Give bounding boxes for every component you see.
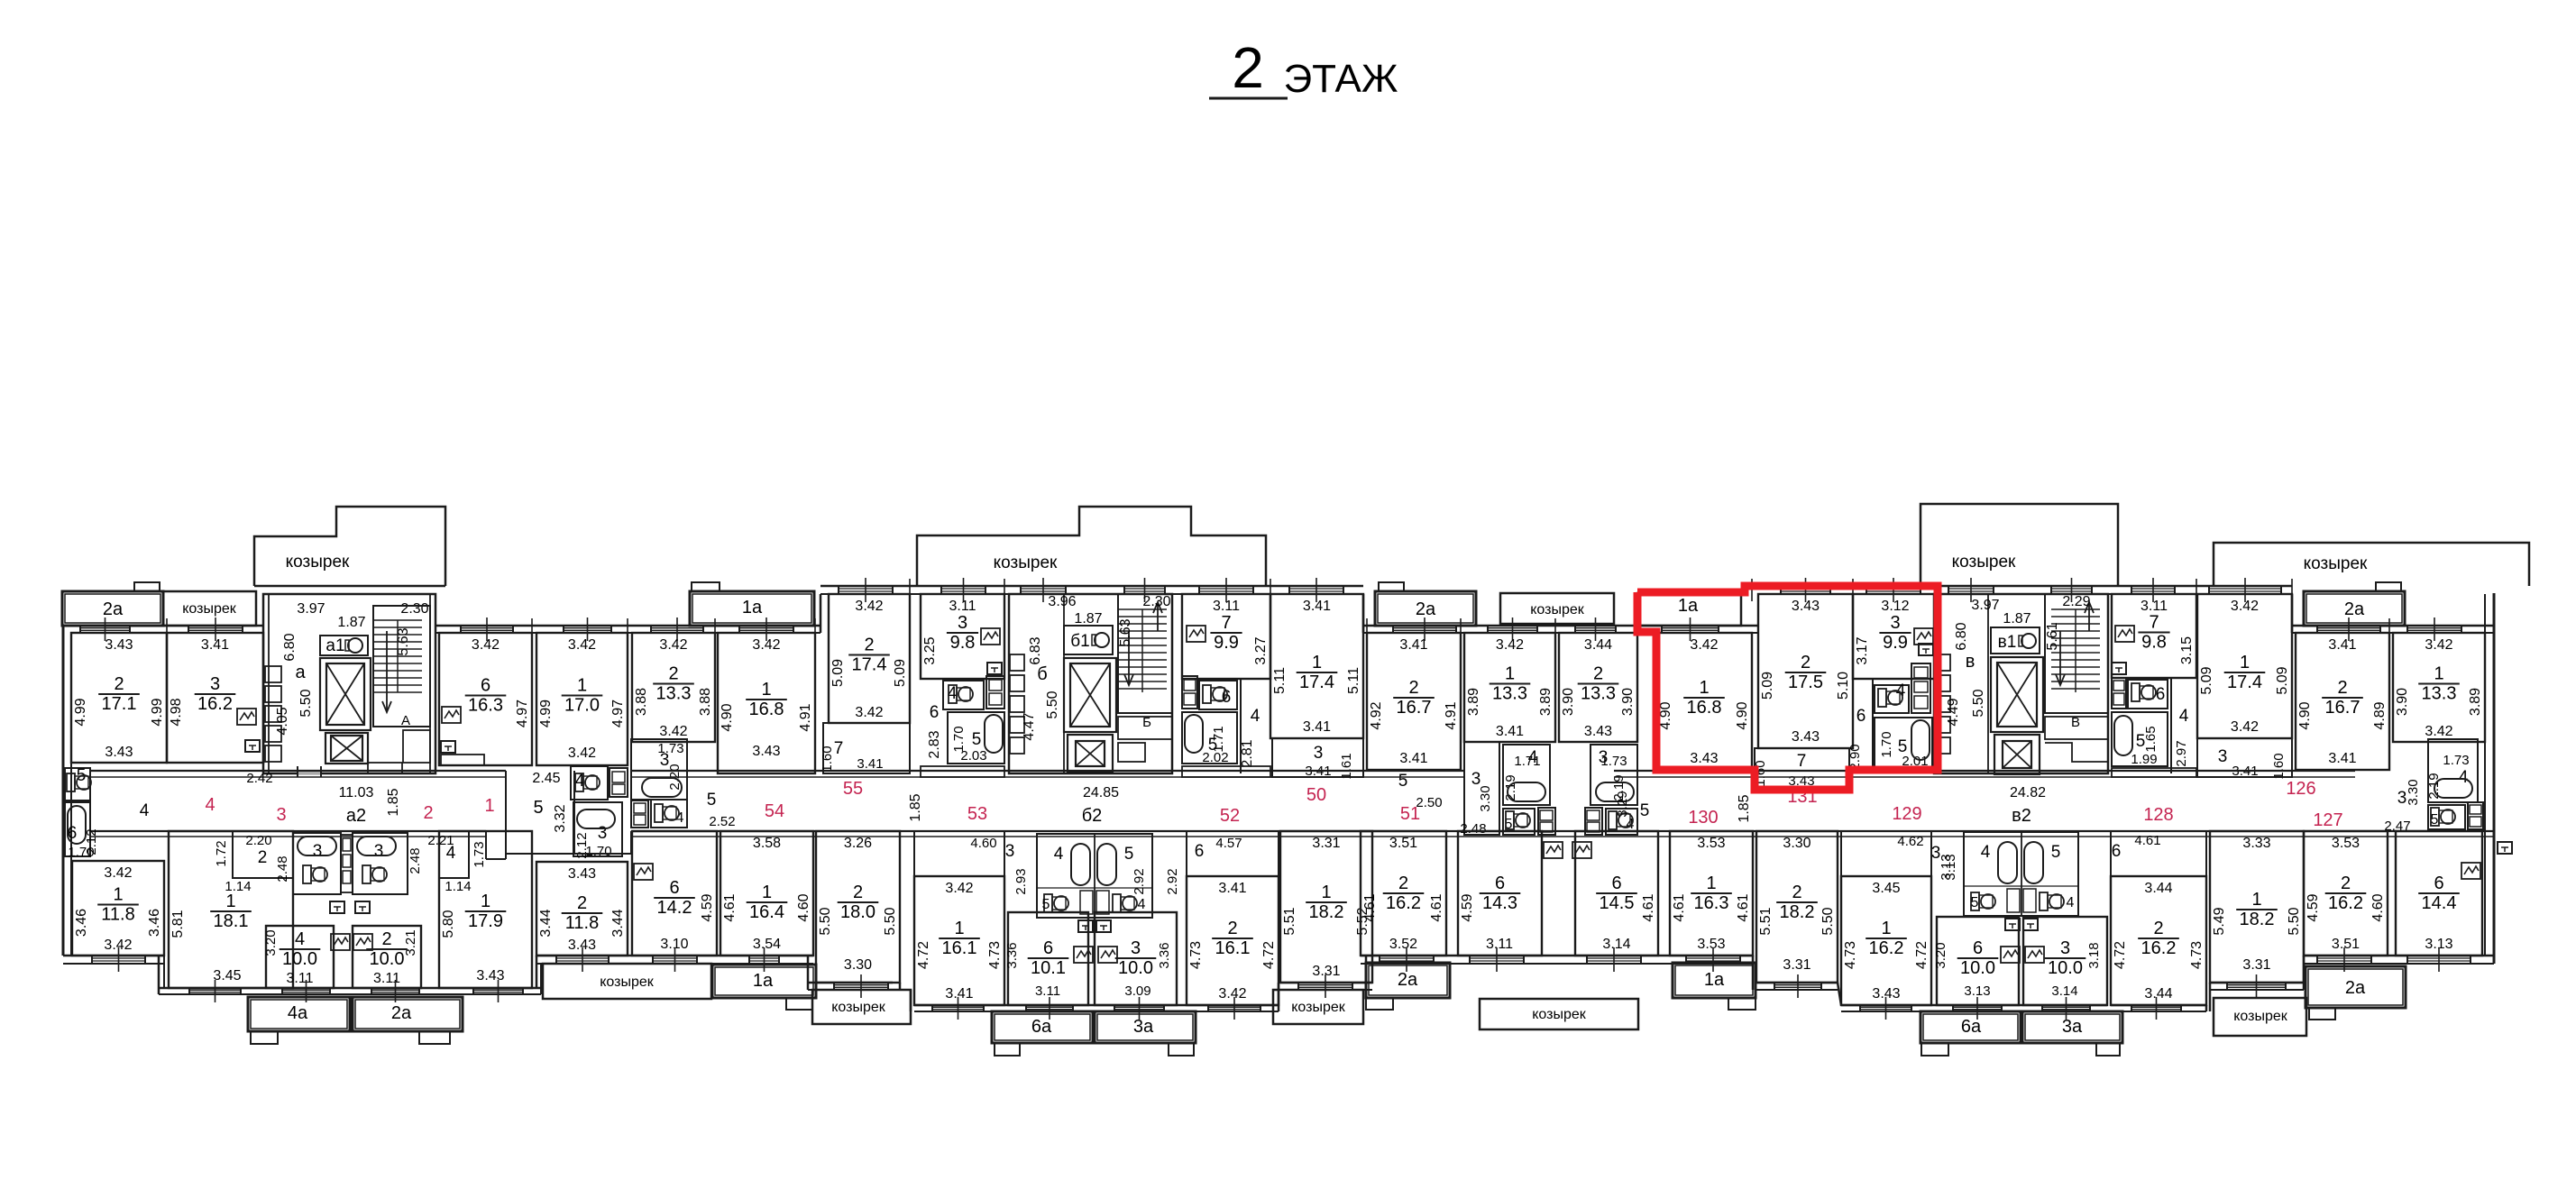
svg-text:3.13: 3.13 xyxy=(1964,983,1990,999)
svg-text:3.41: 3.41 xyxy=(1399,637,1427,653)
svg-text:2а: 2а xyxy=(2345,978,2366,998)
svg-text:5.61: 5.61 xyxy=(2045,622,2060,650)
svg-text:3.11: 3.11 xyxy=(1486,937,1513,952)
svg-text:3.42: 3.42 xyxy=(2231,719,2259,735)
svg-text:3.97: 3.97 xyxy=(1971,598,1999,613)
svg-text:16.1: 16.1 xyxy=(1215,938,1251,958)
svg-text:3: 3 xyxy=(1890,613,1900,633)
svg-text:16.1: 16.1 xyxy=(942,938,977,958)
svg-text:3.25: 3.25 xyxy=(922,636,938,664)
svg-text:4.72: 4.72 xyxy=(2113,941,2128,969)
svg-text:2.45: 2.45 xyxy=(532,771,560,786)
svg-text:4.90: 4.90 xyxy=(720,703,735,731)
svg-text:55: 55 xyxy=(843,779,863,799)
svg-text:4.73: 4.73 xyxy=(1843,941,1858,969)
svg-text:2.30: 2.30 xyxy=(400,601,428,617)
svg-text:24.85: 24.85 xyxy=(1083,785,1119,800)
svg-text:17.1: 17.1 xyxy=(102,694,137,714)
svg-text:3: 3 xyxy=(1599,748,1609,767)
svg-text:11.03: 11.03 xyxy=(339,785,374,800)
svg-text:3.42: 3.42 xyxy=(659,637,687,653)
svg-text:5.49: 5.49 xyxy=(2212,907,2227,935)
svg-text:3.36: 3.36 xyxy=(1004,942,1020,968)
svg-text:6.80: 6.80 xyxy=(282,633,298,661)
svg-text:4.59: 4.59 xyxy=(2306,893,2321,921)
svg-text:50: 50 xyxy=(1306,785,1326,805)
svg-text:17.4: 17.4 xyxy=(2227,672,2262,692)
svg-text:4.73: 4.73 xyxy=(987,941,1003,969)
svg-text:2.83: 2.83 xyxy=(927,730,942,758)
svg-text:4.91: 4.91 xyxy=(798,703,813,731)
svg-text:1: 1 xyxy=(484,796,494,816)
svg-text:3: 3 xyxy=(1005,842,1015,861)
svg-text:2: 2 xyxy=(258,848,268,867)
svg-text:3.46: 3.46 xyxy=(147,909,162,937)
svg-text:13.3: 13.3 xyxy=(656,684,692,704)
svg-text:1: 1 xyxy=(481,892,490,911)
svg-text:10.0: 10.0 xyxy=(1118,958,1153,978)
svg-text:4: 4 xyxy=(1528,748,1538,767)
svg-text:130: 130 xyxy=(1688,808,1718,828)
svg-text:1.73: 1.73 xyxy=(472,841,487,867)
svg-text:3.30: 3.30 xyxy=(1478,785,1493,811)
svg-text:2.92: 2.92 xyxy=(1132,868,1147,894)
svg-text:17.9: 17.9 xyxy=(468,911,503,931)
svg-text:2а: 2а xyxy=(391,1003,412,1023)
svg-text:2.02: 2.02 xyxy=(1202,750,1228,765)
svg-text:5: 5 xyxy=(2051,843,2061,862)
svg-text:1: 1 xyxy=(1881,919,1891,938)
svg-text:4.61: 4.61 xyxy=(1429,893,1444,921)
svg-text:5: 5 xyxy=(533,798,543,818)
svg-text:3.53: 3.53 xyxy=(2332,836,2360,851)
svg-text:2.97: 2.97 xyxy=(2174,740,2189,766)
svg-text:3.41: 3.41 xyxy=(945,986,973,1002)
svg-text:козырек: козырек xyxy=(1532,1007,1587,1022)
svg-text:16.8: 16.8 xyxy=(749,700,784,719)
svg-text:3.14: 3.14 xyxy=(2051,983,2077,999)
svg-text:3: 3 xyxy=(958,613,967,633)
svg-text:127: 127 xyxy=(2313,810,2342,830)
svg-text:1: 1 xyxy=(2251,890,2261,910)
svg-text:10.1: 10.1 xyxy=(1031,958,1066,978)
svg-text:3.15: 3.15 xyxy=(2179,636,2195,664)
svg-text:3.31: 3.31 xyxy=(1783,957,1811,973)
svg-text:1.60: 1.60 xyxy=(820,746,835,772)
svg-text:1.70: 1.70 xyxy=(585,844,611,859)
svg-text:7: 7 xyxy=(2149,613,2159,633)
svg-text:2: 2 xyxy=(2153,919,2163,938)
svg-text:3.21: 3.21 xyxy=(403,929,418,956)
svg-text:3.27: 3.27 xyxy=(1253,636,1269,664)
svg-text:3.43: 3.43 xyxy=(105,745,133,760)
svg-text:17.4: 17.4 xyxy=(852,655,887,675)
svg-text:3.42: 3.42 xyxy=(2425,637,2452,653)
svg-text:3: 3 xyxy=(313,842,323,861)
svg-text:4.97: 4.97 xyxy=(610,700,626,727)
svg-text:5: 5 xyxy=(1398,772,1408,791)
svg-text:5.09: 5.09 xyxy=(2275,666,2290,694)
svg-text:14.3: 14.3 xyxy=(1482,893,1517,913)
svg-text:4.73: 4.73 xyxy=(2189,941,2205,969)
svg-text:5: 5 xyxy=(1042,897,1050,912)
svg-text:4.99: 4.99 xyxy=(73,698,88,726)
svg-text:16.3: 16.3 xyxy=(1694,893,1729,913)
svg-text:3.41: 3.41 xyxy=(2328,751,2356,766)
svg-text:11.8: 11.8 xyxy=(565,913,599,933)
svg-text:3.30: 3.30 xyxy=(2406,779,2421,805)
svg-text:13.3: 13.3 xyxy=(1581,684,1616,704)
svg-text:3.41: 3.41 xyxy=(1399,751,1427,766)
svg-text:10.0: 10.0 xyxy=(1960,958,1995,978)
svg-text:7: 7 xyxy=(1797,752,1807,771)
svg-text:4: 4 xyxy=(1138,897,1146,912)
svg-text:а: а xyxy=(295,663,306,682)
svg-text:2: 2 xyxy=(2337,678,2347,698)
svg-text:129: 129 xyxy=(1892,804,1921,824)
svg-text:3.45: 3.45 xyxy=(213,968,241,983)
svg-text:4.61: 4.61 xyxy=(1672,893,1687,921)
svg-text:3.90: 3.90 xyxy=(1620,688,1636,716)
svg-text:1.85: 1.85 xyxy=(386,788,401,816)
svg-text:3.11: 3.11 xyxy=(373,971,400,986)
svg-text:11.8: 11.8 xyxy=(101,905,134,925)
svg-text:2.81: 2.81 xyxy=(1240,739,1255,767)
svg-text:3.42: 3.42 xyxy=(2231,599,2259,614)
svg-text:5.09: 5.09 xyxy=(2199,666,2214,694)
svg-text:4.90: 4.90 xyxy=(2297,701,2313,729)
svg-text:3.53: 3.53 xyxy=(1697,937,1725,952)
svg-text:6: 6 xyxy=(1195,842,1205,861)
svg-text:16.2: 16.2 xyxy=(2328,893,2363,913)
svg-text:2: 2 xyxy=(1227,919,1237,938)
svg-text:5: 5 xyxy=(1640,801,1650,820)
svg-text:1: 1 xyxy=(2434,664,2443,684)
svg-text:2: 2 xyxy=(1408,678,1418,698)
svg-text:козырек: козырек xyxy=(286,553,350,572)
svg-text:5.63: 5.63 xyxy=(1118,618,1133,646)
svg-text:3.11: 3.11 xyxy=(949,599,976,614)
svg-text:16.3: 16.3 xyxy=(468,696,503,716)
svg-text:3.42: 3.42 xyxy=(2425,724,2452,739)
svg-text:козырек: козырек xyxy=(2304,554,2368,573)
svg-text:3.44: 3.44 xyxy=(1584,637,1612,653)
svg-text:3.46: 3.46 xyxy=(74,909,89,937)
svg-text:3.41: 3.41 xyxy=(201,637,229,653)
svg-text:4: 4 xyxy=(1054,845,1064,864)
svg-text:6: 6 xyxy=(930,703,940,722)
svg-text:3.41: 3.41 xyxy=(1496,724,1524,739)
svg-text:6: 6 xyxy=(1611,874,1621,893)
svg-text:3.11: 3.11 xyxy=(1213,599,1240,614)
svg-text:3.33: 3.33 xyxy=(2242,836,2270,851)
svg-text:2: 2 xyxy=(668,664,678,684)
svg-text:1: 1 xyxy=(225,892,235,911)
svg-text:5.09: 5.09 xyxy=(830,659,846,687)
svg-text:4: 4 xyxy=(205,795,215,815)
svg-text:10.0: 10.0 xyxy=(2048,958,2083,978)
svg-text:4.47: 4.47 xyxy=(1022,712,1037,740)
svg-text:3.52: 3.52 xyxy=(1389,937,1417,952)
svg-text:6.83: 6.83 xyxy=(1028,636,1043,664)
svg-text:14.4: 14.4 xyxy=(2422,893,2457,913)
svg-text:1а: 1а xyxy=(742,598,763,617)
svg-text:3.43: 3.43 xyxy=(752,744,780,759)
svg-text:3.26: 3.26 xyxy=(844,836,872,851)
svg-text:3.43: 3.43 xyxy=(1792,599,1820,614)
svg-text:14.5: 14.5 xyxy=(1600,893,1635,913)
svg-text:1а: 1а xyxy=(1678,596,1699,616)
svg-text:13.3: 13.3 xyxy=(1492,684,1527,704)
svg-text:1: 1 xyxy=(1699,678,1709,698)
svg-text:4.61: 4.61 xyxy=(2134,833,2160,848)
svg-text:3.89: 3.89 xyxy=(1538,688,1554,716)
svg-text:3.12: 3.12 xyxy=(1881,599,1909,614)
svg-text:18.2: 18.2 xyxy=(1309,902,1344,922)
svg-text:3.29: 3.29 xyxy=(1615,791,1630,817)
svg-text:4.98: 4.98 xyxy=(169,698,184,726)
svg-text:7: 7 xyxy=(1221,613,1231,633)
svg-text:3: 3 xyxy=(1314,744,1324,763)
svg-text:1.61: 1.61 xyxy=(1339,753,1354,779)
svg-text:3.51: 3.51 xyxy=(2332,937,2360,952)
svg-text:1.65: 1.65 xyxy=(2143,726,2159,752)
svg-text:2.29: 2.29 xyxy=(2062,594,2090,609)
svg-text:3.42: 3.42 xyxy=(1690,637,1718,653)
svg-text:козырек: козырек xyxy=(2233,1009,2288,1024)
svg-text:3.43: 3.43 xyxy=(476,968,504,983)
svg-text:3: 3 xyxy=(2060,938,2070,958)
svg-text:5.50: 5.50 xyxy=(883,907,898,935)
svg-text:24.82: 24.82 xyxy=(2010,785,2046,800)
svg-text:5.50: 5.50 xyxy=(1971,689,1986,717)
svg-text:3.11: 3.11 xyxy=(287,971,314,986)
svg-text:4.61: 4.61 xyxy=(722,893,738,921)
svg-text:52: 52 xyxy=(1220,806,1240,826)
svg-text:4.60: 4.60 xyxy=(970,836,996,851)
svg-text:5: 5 xyxy=(1124,845,1134,864)
svg-text:3.41: 3.41 xyxy=(1303,599,1331,614)
svg-text:козырек: козырек xyxy=(1291,1000,1346,1015)
svg-text:9.8: 9.8 xyxy=(2141,633,2167,653)
svg-text:18.0: 18.0 xyxy=(840,902,875,922)
svg-text:в1: в1 xyxy=(1998,633,2017,652)
svg-text:4: 4 xyxy=(2067,895,2075,910)
svg-text:18.1: 18.1 xyxy=(214,911,249,931)
svg-text:4.59: 4.59 xyxy=(700,893,715,921)
svg-text:1: 1 xyxy=(762,883,772,902)
svg-text:3.90: 3.90 xyxy=(1561,688,1576,716)
svg-text:9.9: 9.9 xyxy=(1214,633,1239,653)
svg-text:2.19: 2.19 xyxy=(1503,774,1518,800)
svg-text:18.2: 18.2 xyxy=(1780,902,1815,922)
svg-text:в: в xyxy=(1966,652,1976,672)
svg-text:126: 126 xyxy=(2286,779,2315,799)
svg-text:1: 1 xyxy=(2240,653,2250,672)
svg-text:10.0: 10.0 xyxy=(282,949,317,969)
svg-text:1а: 1а xyxy=(1704,970,1725,990)
svg-text:5.50: 5.50 xyxy=(298,689,314,717)
svg-text:4.99: 4.99 xyxy=(538,700,554,727)
svg-text:18.2: 18.2 xyxy=(2240,910,2275,929)
svg-text:4.57: 4.57 xyxy=(1215,836,1242,851)
svg-text:3.42: 3.42 xyxy=(472,637,500,653)
svg-text:3.43: 3.43 xyxy=(105,637,133,653)
svg-text:3.41: 3.41 xyxy=(2328,637,2356,653)
svg-text:3: 3 xyxy=(210,674,220,694)
svg-text:4.89: 4.89 xyxy=(2372,701,2388,729)
svg-text:козырек: козырек xyxy=(600,974,655,990)
svg-text:4.72: 4.72 xyxy=(1914,941,1930,969)
svg-text:1.73: 1.73 xyxy=(2443,753,2469,768)
svg-text:3.20: 3.20 xyxy=(263,929,279,956)
svg-text:3.31: 3.31 xyxy=(1312,964,1340,979)
svg-text:1.85: 1.85 xyxy=(908,793,923,821)
svg-text:1.87: 1.87 xyxy=(2003,611,2031,627)
svg-text:1.14: 1.14 xyxy=(225,879,251,894)
svg-text:3.43: 3.43 xyxy=(1792,729,1820,745)
svg-text:2.03: 2.03 xyxy=(960,748,986,764)
svg-text:а1: а1 xyxy=(325,636,344,655)
svg-text:6: 6 xyxy=(1856,707,1866,726)
svg-text:3.43: 3.43 xyxy=(568,866,596,882)
svg-text:16.4: 16.4 xyxy=(749,902,784,922)
svg-text:4.91: 4.91 xyxy=(1444,701,1459,729)
svg-text:5.50: 5.50 xyxy=(1045,691,1060,718)
svg-text:4: 4 xyxy=(140,801,150,820)
svg-text:6: 6 xyxy=(1973,938,1983,958)
svg-text:6.80: 6.80 xyxy=(1954,622,1969,650)
svg-text:2.48: 2.48 xyxy=(408,847,423,874)
svg-text:1: 1 xyxy=(954,919,964,938)
svg-text:б2: б2 xyxy=(1082,806,1103,826)
svg-text:16.2: 16.2 xyxy=(197,694,233,714)
svg-text:3.45: 3.45 xyxy=(1872,881,1900,896)
svg-text:а2: а2 xyxy=(346,806,366,826)
svg-text:4.97: 4.97 xyxy=(515,700,530,727)
svg-text:1.85: 1.85 xyxy=(1737,794,1752,822)
svg-text:3.53: 3.53 xyxy=(1697,836,1725,851)
svg-text:3.44: 3.44 xyxy=(2144,881,2172,896)
svg-text:2: 2 xyxy=(1792,883,1801,902)
svg-text:3.44: 3.44 xyxy=(610,909,626,937)
svg-text:2.42: 2.42 xyxy=(246,771,272,786)
svg-text:в2: в2 xyxy=(2012,806,2031,826)
svg-text:53: 53 xyxy=(967,804,987,824)
svg-text:3.11: 3.11 xyxy=(2141,599,2168,614)
svg-text:3: 3 xyxy=(276,805,286,825)
svg-text:3: 3 xyxy=(2218,747,2228,766)
svg-text:3.14: 3.14 xyxy=(1602,937,1630,952)
svg-text:3: 3 xyxy=(374,842,384,861)
svg-text:16.2: 16.2 xyxy=(2141,938,2177,958)
svg-text:3.30: 3.30 xyxy=(1783,836,1811,851)
svg-text:5: 5 xyxy=(972,730,982,749)
svg-text:3.43: 3.43 xyxy=(1690,751,1718,766)
svg-text:1.87: 1.87 xyxy=(337,615,365,630)
svg-text:128: 128 xyxy=(2143,805,2173,825)
svg-text:3.18: 3.18 xyxy=(2086,942,2102,968)
svg-text:4.90: 4.90 xyxy=(1735,701,1750,729)
svg-text:козырек: козырек xyxy=(994,553,1058,572)
svg-text:2а: 2а xyxy=(1416,599,1436,619)
svg-text:4.60: 4.60 xyxy=(796,893,811,921)
svg-text:1.99: 1.99 xyxy=(2131,752,2157,767)
svg-text:1: 1 xyxy=(761,680,771,700)
svg-text:3.31: 3.31 xyxy=(1312,836,1340,851)
svg-text:3.43: 3.43 xyxy=(1584,724,1612,739)
svg-text:3.42: 3.42 xyxy=(568,746,596,761)
svg-text:4.62: 4.62 xyxy=(1897,834,1923,849)
svg-text:3.42: 3.42 xyxy=(945,881,973,896)
svg-text:6: 6 xyxy=(669,878,679,898)
svg-text:4.59: 4.59 xyxy=(1460,893,1475,921)
svg-text:1.71: 1.71 xyxy=(1211,726,1226,752)
svg-text:2а: 2а xyxy=(1398,970,1418,990)
svg-text:4.61: 4.61 xyxy=(1362,893,1378,921)
svg-text:1а: 1а xyxy=(753,971,774,991)
svg-text:5.09: 5.09 xyxy=(1760,672,1775,700)
svg-text:16.8: 16.8 xyxy=(1687,698,1722,718)
svg-text:3.51: 3.51 xyxy=(1389,836,1417,851)
svg-text:4.99: 4.99 xyxy=(150,698,165,726)
svg-text:1: 1 xyxy=(1505,664,1515,684)
svg-text:1: 1 xyxy=(1321,883,1331,902)
svg-text:6: 6 xyxy=(2112,842,2122,861)
svg-text:2: 2 xyxy=(577,893,587,913)
svg-text:3.41: 3.41 xyxy=(1303,719,1331,735)
svg-text:2.20: 2.20 xyxy=(245,833,271,848)
svg-text:2.30: 2.30 xyxy=(1142,594,1170,609)
svg-text:3.42: 3.42 xyxy=(1218,986,1246,1002)
svg-text:1: 1 xyxy=(1312,653,1322,672)
svg-text:2: 2 xyxy=(1398,874,1408,893)
svg-text:54: 54 xyxy=(765,801,784,821)
svg-text:1.72: 1.72 xyxy=(214,840,229,866)
svg-text:3.97: 3.97 xyxy=(297,601,325,617)
svg-text:1.73: 1.73 xyxy=(657,741,683,756)
svg-text:2.48: 2.48 xyxy=(1460,821,1486,837)
svg-text:5.50: 5.50 xyxy=(1820,907,1836,935)
svg-text:17.5: 17.5 xyxy=(1788,672,1823,692)
svg-text:13.3: 13.3 xyxy=(2422,684,2457,704)
svg-text:3.88: 3.88 xyxy=(634,688,649,716)
svg-text:3.58: 3.58 xyxy=(753,836,781,851)
svg-text:3.44: 3.44 xyxy=(538,909,554,937)
svg-text:2: 2 xyxy=(2341,874,2351,893)
svg-text:2: 2 xyxy=(864,636,874,655)
svg-text:1: 1 xyxy=(577,676,587,696)
svg-text:3.89: 3.89 xyxy=(1466,688,1481,716)
svg-text:5.51: 5.51 xyxy=(1758,907,1774,935)
svg-text:козырек: козырек xyxy=(1952,553,2016,572)
svg-text:4.90: 4.90 xyxy=(1658,701,1673,729)
svg-text:3.42: 3.42 xyxy=(752,637,780,653)
svg-text:16.2: 16.2 xyxy=(1869,938,1904,958)
svg-text:3.42: 3.42 xyxy=(1496,637,1524,653)
svg-text:4а: 4а xyxy=(288,1003,308,1023)
svg-text:6: 6 xyxy=(1043,938,1053,958)
svg-text:4.72: 4.72 xyxy=(916,941,931,969)
svg-text:2.52: 2.52 xyxy=(709,814,735,829)
svg-text:16.2: 16.2 xyxy=(1386,893,1421,913)
svg-text:5.11: 5.11 xyxy=(1272,667,1288,694)
svg-text:3: 3 xyxy=(1131,938,1141,958)
svg-text:3.54: 3.54 xyxy=(753,937,781,952)
svg-text:3.20: 3.20 xyxy=(1933,942,1948,968)
svg-text:3.41: 3.41 xyxy=(857,756,883,772)
svg-text:3.42: 3.42 xyxy=(855,599,883,614)
